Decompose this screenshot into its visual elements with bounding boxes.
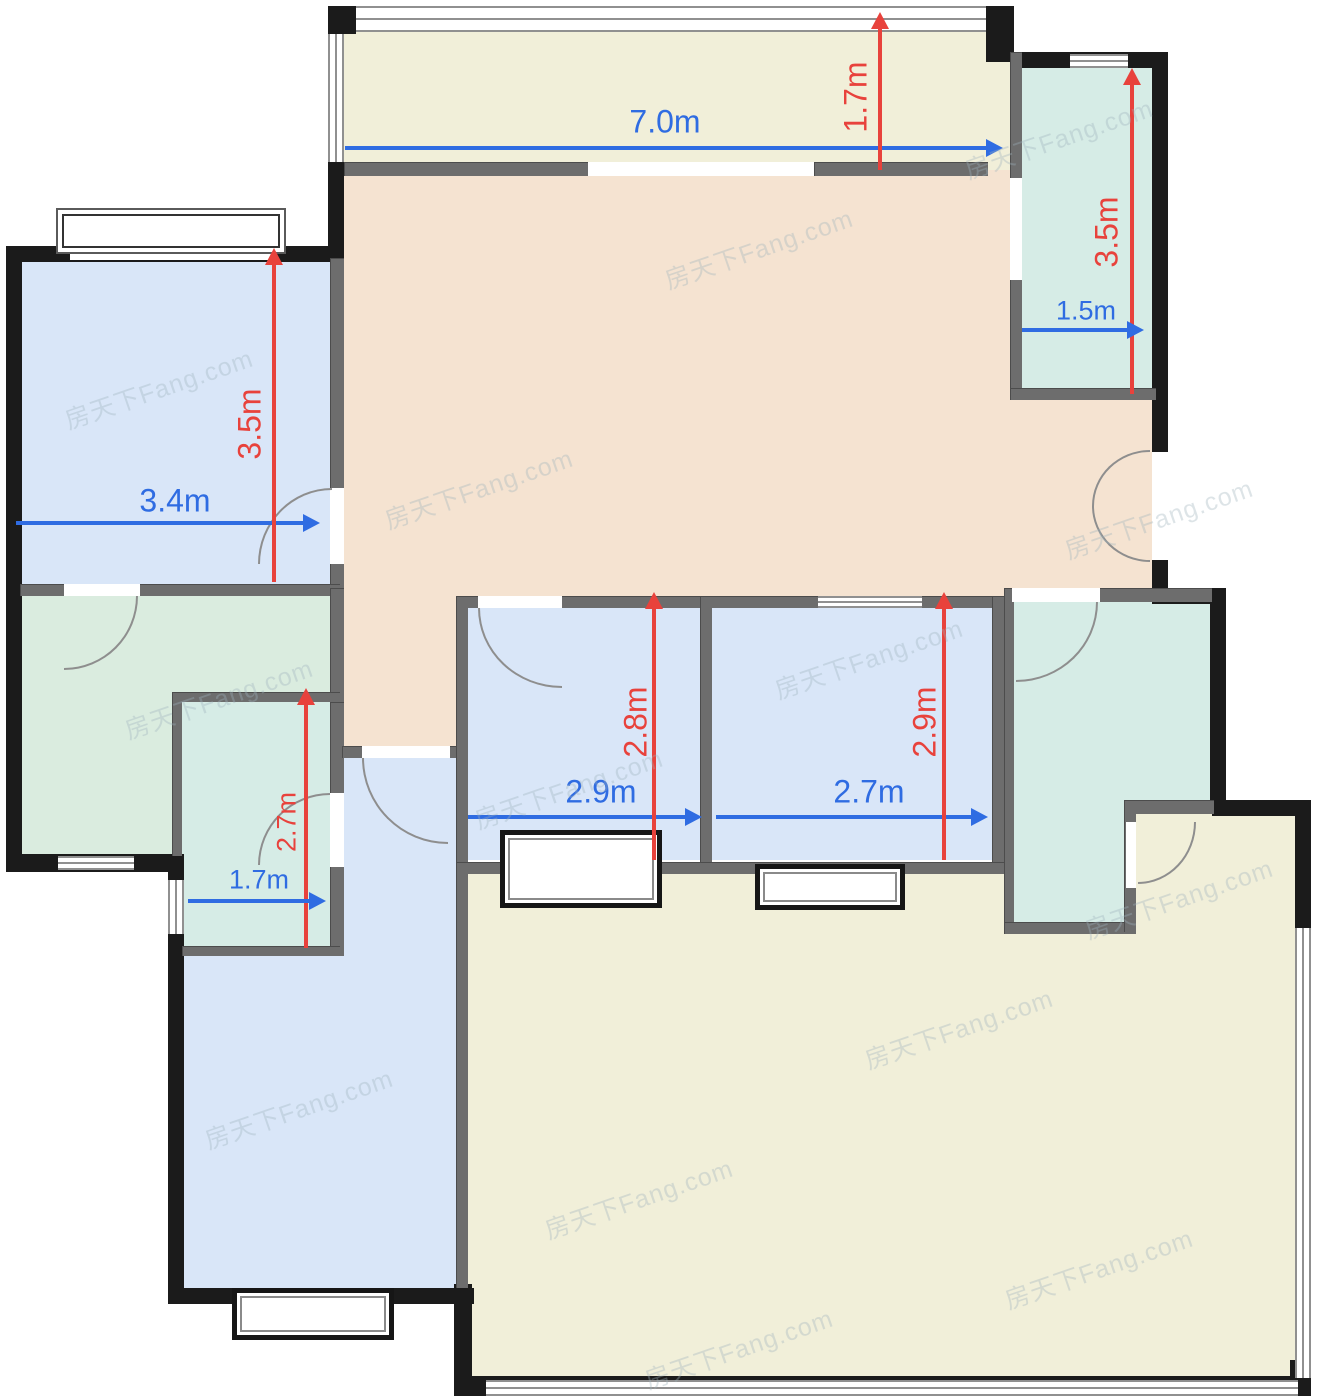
dim-label-bedroom-mid-height: 2.8m <box>618 686 655 757</box>
entry-door-opening <box>1152 452 1168 560</box>
partition-wall <box>1004 922 1136 934</box>
dim-arrow-balcony-width <box>345 146 987 150</box>
room-bedroom-bottom-left <box>184 954 456 1290</box>
dim-label-bath-left-width: 1.7m <box>229 865 289 896</box>
wall-segment <box>6 246 22 872</box>
wall-segment <box>168 928 184 1304</box>
room-bedroom-right <box>710 606 994 860</box>
window <box>486 1380 1298 1396</box>
partition-wall <box>330 588 344 702</box>
partition-wall <box>1124 800 1214 814</box>
partition-wall <box>992 596 1004 868</box>
room-hall-strip <box>342 598 460 752</box>
bay-window <box>755 864 905 910</box>
door-opening <box>478 596 562 608</box>
bay-window <box>56 208 286 254</box>
bay-window <box>500 830 662 908</box>
wall-segment <box>328 6 356 34</box>
door-opening <box>64 584 140 596</box>
floor-plan: 7.0m 1.7m 3.5m 1.5m 3.4m 3.5m 2.7m 1.7m … <box>0 0 1327 1400</box>
wall-segment <box>1212 800 1311 816</box>
dim-arrow-bath-left-width <box>188 899 310 903</box>
window <box>328 34 344 162</box>
balcony-opening <box>588 162 814 176</box>
partition-wall <box>182 946 340 956</box>
dim-label-bedroom-mid-width: 2.9m <box>565 774 636 811</box>
dim-label-bedroom-right-width: 2.7m <box>833 774 904 811</box>
door-opening <box>1126 822 1136 888</box>
dim-arrow-utility-height <box>1130 84 1134 394</box>
door-opening <box>330 793 344 867</box>
window <box>1070 54 1128 68</box>
partition-wall <box>700 596 712 868</box>
dim-label-bath-left-height: 2.7m <box>272 792 303 852</box>
door-opening <box>1012 588 1100 602</box>
room-bathroom-right-lower <box>1004 806 1124 926</box>
dim-label-bedroom-tl-height: 3.5m <box>232 388 269 459</box>
window <box>168 880 184 934</box>
window <box>818 596 922 608</box>
partition-wall <box>1010 388 1156 400</box>
door-opening <box>362 746 450 758</box>
window <box>1295 928 1311 1378</box>
dim-arrow-balcony-depth <box>878 28 882 170</box>
dim-label-utility-width: 1.5m <box>1056 296 1116 327</box>
partition-wall <box>172 692 182 856</box>
room-living-bottom <box>468 874 1298 1382</box>
window <box>58 856 134 870</box>
dim-arrow-bedroom-tl-height <box>272 264 276 582</box>
pass-opening <box>1010 178 1022 280</box>
dim-arrow-bath-left-height <box>304 704 308 948</box>
partition-wall <box>344 162 590 176</box>
partition-wall <box>1004 588 1014 932</box>
dim-label-bedroom-tl-width: 3.4m <box>139 483 210 520</box>
dim-label-utility-height: 3.5m <box>1089 196 1126 267</box>
door-opening <box>330 488 344 564</box>
wall-segment <box>1295 800 1311 930</box>
partition-wall <box>814 162 988 176</box>
partition-wall <box>456 596 468 1288</box>
dim-label-balcony-width: 7.0m <box>629 104 700 141</box>
dim-arrow-utility-width <box>1022 328 1128 332</box>
dim-arrow-bedroom-right-width <box>716 815 972 819</box>
dim-arrow-bedroom-tl-width <box>16 521 304 525</box>
dim-label-bedroom-right-height: 2.9m <box>907 686 944 757</box>
window <box>356 6 986 32</box>
wall-segment <box>1210 592 1226 806</box>
bay-window <box>232 1288 394 1340</box>
dim-label-balcony-depth: 1.7m <box>838 61 875 132</box>
